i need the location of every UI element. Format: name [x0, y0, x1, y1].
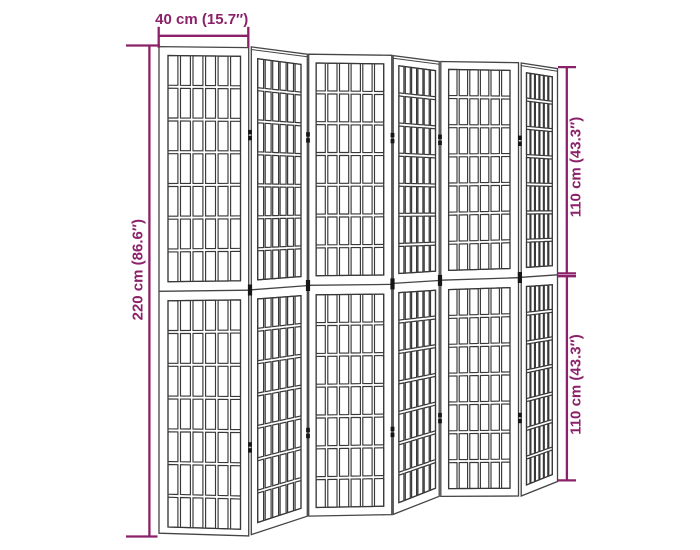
svg-text:220 cm (86.6″): 220 cm (86.6″)	[130, 219, 147, 320]
svg-text:110 cm (43.3″): 110 cm (43.3″)	[568, 117, 585, 218]
svg-text:110 cm (43.3″): 110 cm (43.3″)	[568, 334, 585, 435]
svg-text:40 cm (15.7″): 40 cm (15.7″)	[155, 11, 248, 28]
